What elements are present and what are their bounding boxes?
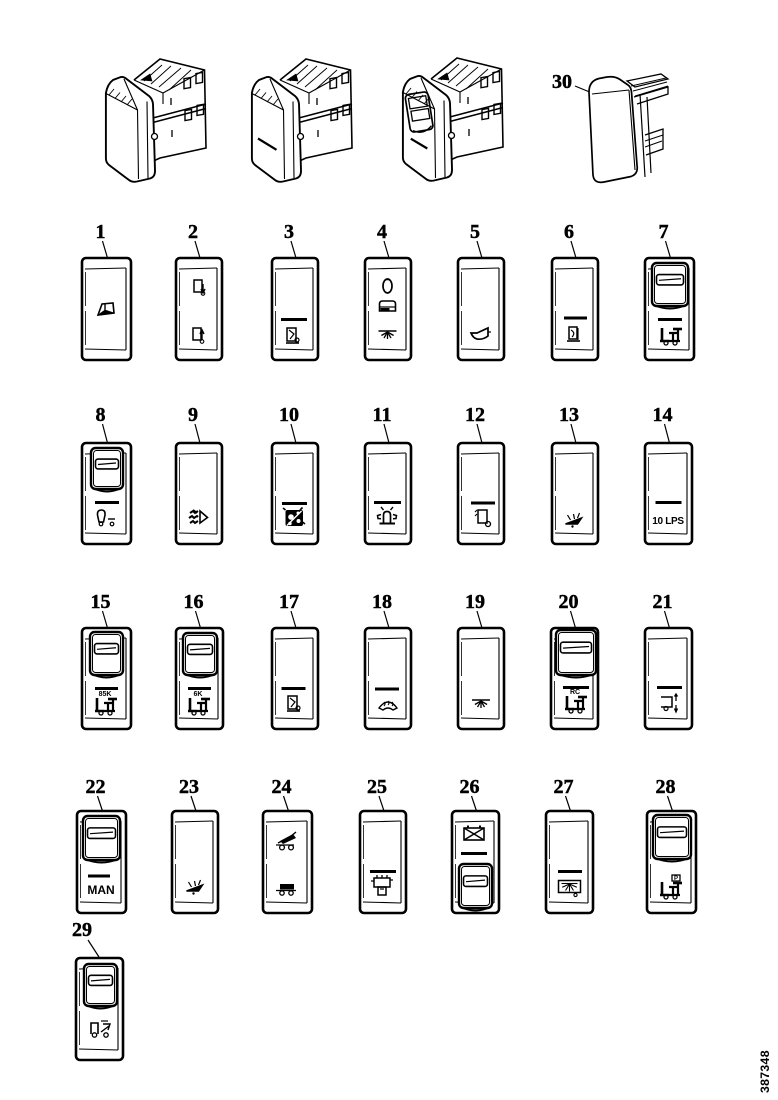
svg-text:11: 11 xyxy=(373,404,392,426)
svg-text:19: 19 xyxy=(465,591,485,613)
svg-text:8: 8 xyxy=(96,404,106,426)
svg-text:13: 13 xyxy=(559,404,579,426)
svg-text:10: 10 xyxy=(279,404,299,426)
svg-text:27: 27 xyxy=(554,776,574,798)
svg-text:10 LPS: 10 LPS xyxy=(652,516,684,527)
svg-text:25: 25 xyxy=(367,776,387,798)
svg-text:9: 9 xyxy=(188,404,198,426)
svg-text:15: 15 xyxy=(91,591,111,613)
svg-text:P: P xyxy=(674,876,678,882)
svg-text:6: 6 xyxy=(564,221,574,243)
svg-text:26: 26 xyxy=(460,776,480,798)
svg-text:6K: 6K xyxy=(194,691,203,698)
svg-text:7: 7 xyxy=(659,221,669,243)
svg-text:28: 28 xyxy=(656,776,676,798)
svg-text:21: 21 xyxy=(653,591,673,613)
svg-text:20: 20 xyxy=(559,591,579,613)
svg-text:22: 22 xyxy=(86,776,106,798)
svg-text:85K: 85K xyxy=(99,691,112,698)
svg-text:16: 16 xyxy=(184,591,204,613)
svg-text:2: 2 xyxy=(188,221,198,243)
svg-text:4: 4 xyxy=(377,221,387,243)
svg-text:29: 29 xyxy=(72,919,92,941)
svg-text:MAN: MAN xyxy=(87,883,114,897)
svg-text:5: 5 xyxy=(470,221,480,243)
svg-text:17: 17 xyxy=(279,591,299,613)
svg-text:1: 1 xyxy=(96,221,106,243)
svg-text:387348: 387348 xyxy=(758,1050,772,1093)
svg-text:RC: RC xyxy=(570,689,580,696)
svg-text:3: 3 xyxy=(284,221,294,243)
svg-text:18: 18 xyxy=(372,591,392,613)
svg-text:23: 23 xyxy=(179,776,199,798)
svg-text:12: 12 xyxy=(465,404,485,426)
svg-text:24: 24 xyxy=(272,776,292,798)
svg-text:14: 14 xyxy=(653,404,673,426)
svg-text:30: 30 xyxy=(552,71,572,93)
